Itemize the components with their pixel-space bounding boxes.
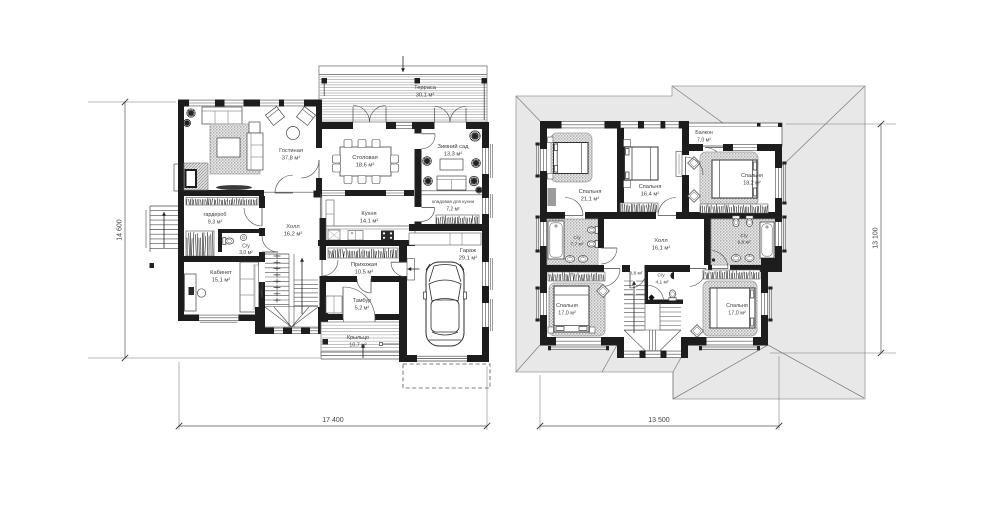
- svg-text:13 100: 13 100: [873, 227, 880, 249]
- svg-text:С/у: С/у: [657, 273, 665, 279]
- svg-text:Гараж: Гараж: [460, 248, 476, 254]
- svg-text:14,1 м²: 14,1 м²: [360, 219, 379, 225]
- svg-text:7,7 м²: 7,7 м²: [571, 242, 584, 248]
- svg-text:4,1 м²: 4,1 м²: [656, 280, 669, 286]
- svg-text:Крыльцо: Крыльцо: [347, 335, 369, 341]
- svg-text:Спальня: Спальня: [556, 303, 578, 309]
- svg-text:9,8 м²: 9,8 м²: [738, 240, 751, 246]
- svg-text:Терраса: Терраса: [414, 85, 437, 91]
- svg-text:17,0 м²: 17,0 м²: [728, 311, 746, 317]
- svg-text:17,0 м²: 17,0 м²: [558, 311, 576, 317]
- svg-text:29,1 м²: 29,1 м²: [459, 256, 478, 262]
- svg-text:3,0 м²: 3,0 м²: [239, 250, 253, 256]
- svg-text:37,8 м²: 37,8 м²: [282, 156, 301, 162]
- svg-text:16,2 м²: 16,2 м²: [284, 232, 303, 238]
- svg-text:10,5 м²: 10,5 м²: [355, 270, 374, 276]
- svg-text:21,1 м²: 21,1 м²: [581, 197, 600, 203]
- svg-text:Прихожая: Прихожая: [351, 262, 377, 268]
- svg-text:Спальня: Спальня: [726, 303, 748, 309]
- svg-text:14 600: 14 600: [117, 219, 124, 241]
- svg-text:7,2 м²: 7,2 м²: [446, 207, 460, 213]
- svg-text:Кухня: Кухня: [361, 211, 376, 217]
- svg-text:16,1 м²: 16,1 м²: [652, 246, 671, 252]
- svg-text:Тамбур: Тамбур: [353, 298, 371, 304]
- svg-text:Спальня: Спальня: [639, 184, 662, 190]
- svg-text:С/у: С/у: [573, 235, 581, 241]
- svg-text:гардероб: гардероб: [204, 212, 227, 218]
- svg-text:9,3 м²: 9,3 м²: [208, 220, 223, 226]
- svg-text:Гостиная: Гостиная: [279, 148, 303, 154]
- svg-text:18,6 м²: 18,6 м²: [356, 163, 375, 169]
- svg-text:15,1 м²: 15,1 м²: [212, 278, 231, 284]
- svg-text:13,3 м²: 13,3 м²: [444, 152, 463, 158]
- svg-text:Холл: Холл: [654, 238, 667, 244]
- svg-text:16,4 м²: 16,4 м²: [641, 192, 660, 198]
- svg-text:С/у: С/у: [242, 244, 250, 250]
- svg-text:0,8 м²: 0,8 м²: [630, 271, 643, 277]
- svg-text:С/у: С/у: [740, 233, 748, 239]
- svg-text:Столовая: Столовая: [352, 155, 377, 161]
- svg-text:7,0 м²: 7,0 м²: [697, 138, 711, 144]
- svg-text:Балкон: Балкон: [695, 130, 713, 136]
- svg-text:30,1 м²: 30,1 м²: [416, 93, 435, 99]
- svg-text:5,2 м²: 5,2 м²: [355, 306, 370, 312]
- svg-text:Холл: Холл: [286, 224, 299, 230]
- svg-text:Зимний сад: Зимний сад: [438, 143, 470, 150]
- svg-text:Спальня: Спальня: [579, 189, 602, 195]
- svg-text:Спальня: Спальня: [741, 173, 763, 179]
- svg-text:17 400: 17 400: [322, 417, 344, 424]
- svg-text:Кабинет: Кабинет: [210, 270, 232, 276]
- svg-text:кладовая для кухни: кладовая для кухни: [432, 199, 475, 204]
- svg-text:18,2 м²: 18,2 м²: [743, 181, 761, 187]
- svg-text:13 500: 13 500: [648, 417, 670, 424]
